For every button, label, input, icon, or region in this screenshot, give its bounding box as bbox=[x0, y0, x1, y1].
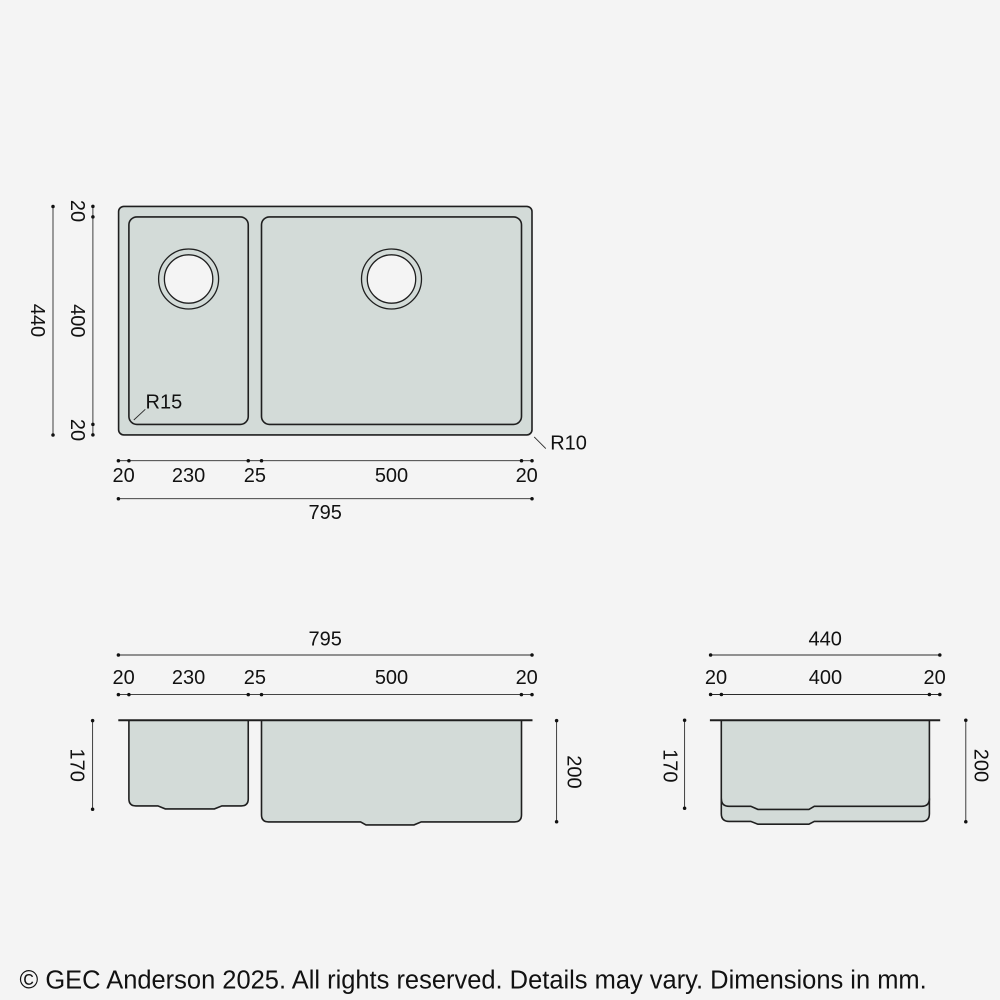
svg-text:170: 170 bbox=[659, 749, 681, 782]
svg-text:200: 200 bbox=[969, 749, 991, 782]
svg-text:440: 440 bbox=[26, 304, 48, 337]
svg-text:400: 400 bbox=[66, 304, 88, 337]
svg-text:20: 20 bbox=[516, 465, 538, 487]
svg-text:795: 795 bbox=[309, 629, 342, 651]
svg-text:R15: R15 bbox=[146, 392, 183, 414]
svg-text:20: 20 bbox=[705, 667, 727, 689]
svg-text:20: 20 bbox=[66, 200, 88, 222]
svg-text:500: 500 bbox=[375, 465, 408, 487]
svg-text:500: 500 bbox=[375, 667, 408, 689]
svg-text:400: 400 bbox=[809, 667, 842, 689]
svg-text:230: 230 bbox=[172, 465, 205, 487]
svg-text:20: 20 bbox=[113, 465, 135, 487]
svg-text:© GEC Anderson 2025. All right: © GEC Anderson 2025. All rights reserved… bbox=[20, 966, 927, 994]
svg-text:20: 20 bbox=[113, 667, 135, 689]
svg-text:25: 25 bbox=[244, 465, 266, 487]
svg-text:20: 20 bbox=[516, 667, 538, 689]
svg-text:795: 795 bbox=[309, 502, 342, 524]
svg-text:20: 20 bbox=[923, 667, 945, 689]
svg-text:170: 170 bbox=[66, 749, 88, 782]
svg-text:230: 230 bbox=[172, 667, 205, 689]
svg-text:20: 20 bbox=[66, 419, 88, 441]
svg-text:200: 200 bbox=[562, 755, 584, 788]
svg-text:440: 440 bbox=[809, 629, 842, 651]
svg-text:R10: R10 bbox=[550, 432, 587, 454]
svg-text:25: 25 bbox=[244, 667, 266, 689]
